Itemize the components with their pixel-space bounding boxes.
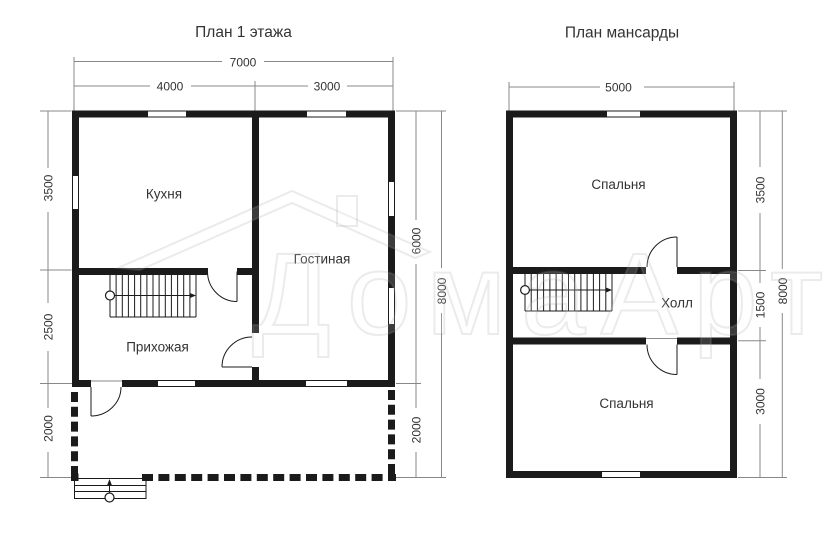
svg-text:План 1 этажа: План 1 этажа [195, 24, 292, 41]
svg-text:5000: 5000 [605, 81, 632, 95]
svg-text:4000: 4000 [157, 80, 184, 94]
svg-text:3500: 3500 [754, 176, 768, 203]
svg-text:2000: 2000 [42, 415, 56, 442]
svg-text:Прихожая: Прихожая [126, 340, 189, 355]
svg-text:ДомаАрт: ДомаАрт [252, 229, 830, 359]
svg-text:2000: 2000 [410, 416, 424, 443]
svg-text:Спальня: Спальня [599, 396, 653, 411]
svg-text:Кухня: Кухня [146, 187, 182, 202]
svg-text:План мансарды: План мансарды [565, 25, 679, 42]
svg-text:Спальня: Спальня [591, 177, 645, 192]
svg-text:3000: 3000 [754, 388, 768, 415]
svg-text:3000: 3000 [314, 80, 341, 94]
svg-text:7000: 7000 [230, 56, 257, 70]
svg-text:3500: 3500 [42, 174, 56, 201]
svg-text:2500: 2500 [42, 313, 56, 340]
